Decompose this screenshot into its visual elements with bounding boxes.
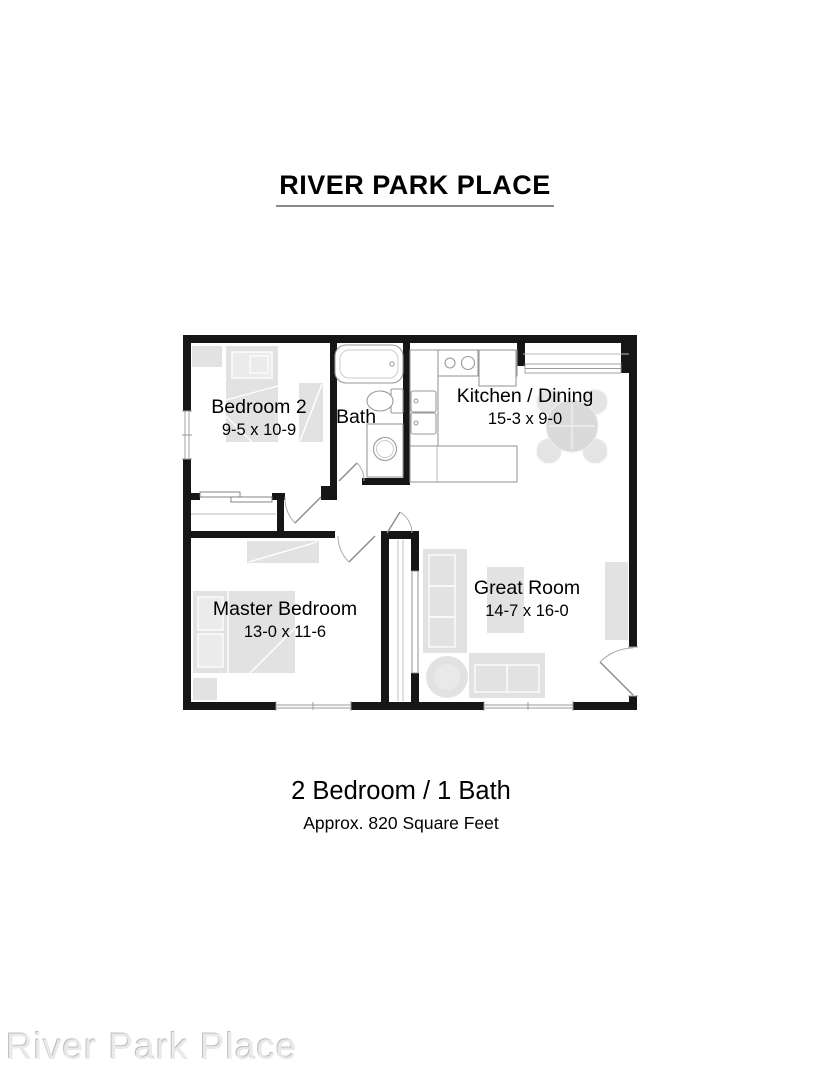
wall-bedroom2-south-b <box>272 493 285 500</box>
window-dining <box>523 354 629 373</box>
bath-door <box>339 463 364 481</box>
wall-top <box>183 335 637 343</box>
wall-bath-south <box>362 478 410 485</box>
refrigerator <box>479 350 516 386</box>
room-name: Bath <box>336 407 376 429</box>
burner <box>445 358 455 368</box>
wall-column-right-bottom <box>411 673 419 702</box>
nightstand <box>192 346 222 367</box>
window-great-room <box>484 701 573 711</box>
master-door <box>338 536 375 562</box>
room-dimensions: 9-5 x 10-9 <box>211 421 306 439</box>
entry-opening <box>628 647 638 696</box>
room-dimensions: 14-7 x 16-0 <box>474 602 580 620</box>
room-label-kitchen-dining: Kitchen / Dining 15-3 x 9-0 <box>457 386 594 428</box>
watermark: River Park Place <box>6 1026 298 1068</box>
bedroom2-door <box>285 497 321 523</box>
floor-plan-drawing <box>0 0 820 1080</box>
wall-column-left <box>381 531 389 710</box>
wall-bath-right <box>403 343 410 485</box>
wall-left <box>183 335 191 710</box>
wall-closet-stub <box>277 500 284 531</box>
room-name: Kitchen / Dining <box>457 386 594 408</box>
peninsula <box>410 446 517 482</box>
area-summary: Approx. 820 Square Feet <box>0 813 802 834</box>
window-bedroom2 <box>182 411 192 459</box>
wall-column-right-top <box>411 539 419 571</box>
wall-bath-corner <box>321 486 337 500</box>
room-dimensions: 15-3 x 9-0 <box>457 410 594 428</box>
room-label-bedroom2: Bedroom 2 9-5 x 10-9 <box>211 397 306 439</box>
flyer-page: RIVER PARK PLACE <box>0 0 820 1080</box>
wall-dining-corner <box>621 343 629 373</box>
room-dimensions: 13-0 x 11-6 <box>213 623 357 641</box>
beds-baths-summary: 2 Bedroom / 1 Bath <box>0 777 802 806</box>
room-label-great-room: Great Room 14-7 x 16-0 <box>474 578 580 620</box>
room-name: Bedroom 2 <box>211 397 306 419</box>
sink-basin <box>411 391 436 412</box>
great-room-furniture <box>423 549 628 698</box>
nightstand <box>193 678 217 700</box>
wall-bedroom2-south-a <box>183 493 200 500</box>
room-label-master-bedroom: Master Bedroom 13-0 x 11-6 <box>213 599 357 641</box>
burner <box>462 357 475 370</box>
sink-basin <box>411 413 436 434</box>
wall-master-north <box>183 531 335 538</box>
unit-summary: 2 Bedroom / 1 Bath Approx. 820 Square Fe… <box>0 777 802 834</box>
closet-slider-bedroom2 <box>200 491 272 502</box>
media-console <box>605 562 628 640</box>
window-master <box>276 701 351 711</box>
hall-closet-door <box>387 512 412 533</box>
room-name: Great Room <box>474 578 580 600</box>
room-name: Master Bedroom <box>213 599 357 621</box>
room-label-bath: Bath <box>336 407 376 429</box>
